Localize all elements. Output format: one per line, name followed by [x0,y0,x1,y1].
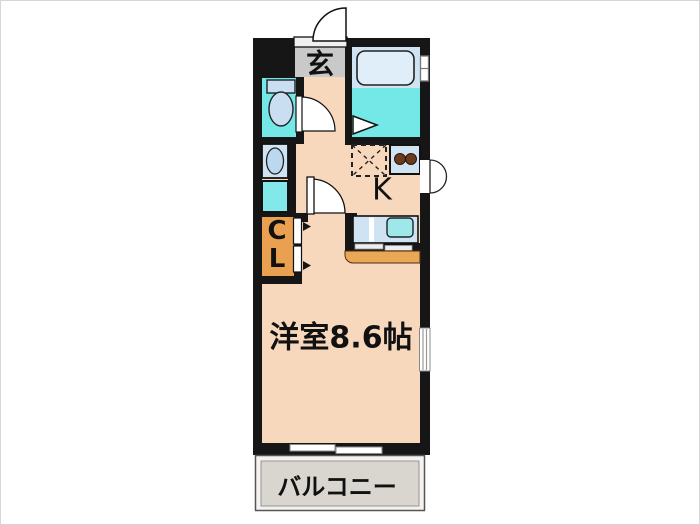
kitchen-service-door-icon [430,160,447,193]
room-door-panel [307,177,314,214]
main-room-label: 洋室8.6帖 [269,321,412,356]
floorplan-image: 玄 K C L 洋室8.6帖 バルコニー [0,0,700,525]
wall-toilet-right-upper [296,77,304,97]
balcony-sliding-panel-right [336,447,382,454]
wall-genkan-bath [345,38,352,145]
entrance-door-icon [313,8,346,41]
counter-pass-panel-left [355,244,383,249]
entrance-label: 玄 [306,48,334,81]
closet-door-upper [294,218,302,244]
wall-bath-kitchen [345,137,430,145]
floorplan-svg: 玄 K C L 洋室8.6帖 バルコニー [0,0,700,525]
washing-machine-space [262,181,288,212]
balcony-label: バルコニー [277,473,397,501]
balcony-sliding-panel-left [290,445,335,452]
stove-icon [390,145,420,174]
toilet-tank-icon [267,80,295,93]
room-window-icon [420,328,431,371]
counter-pass-panel-right [385,246,412,251]
wall-top [345,38,430,47]
sink-icon [387,218,413,237]
counter-table-icon [345,251,420,263]
bathtub-icon [357,51,414,85]
kitchen-door-opening [420,160,430,193]
wall-washbasin-right [288,137,296,213]
washbasin-icon [267,148,284,174]
kitchen-label: K [372,173,393,208]
kitchen-sink-counter [353,216,418,243]
closet-label-c: C [267,216,286,246]
closet-door-lower [294,246,302,272]
toilet-bowl-icon [269,92,293,126]
closet-label-l: L [269,244,286,274]
toilet-door-panel [296,96,302,132]
